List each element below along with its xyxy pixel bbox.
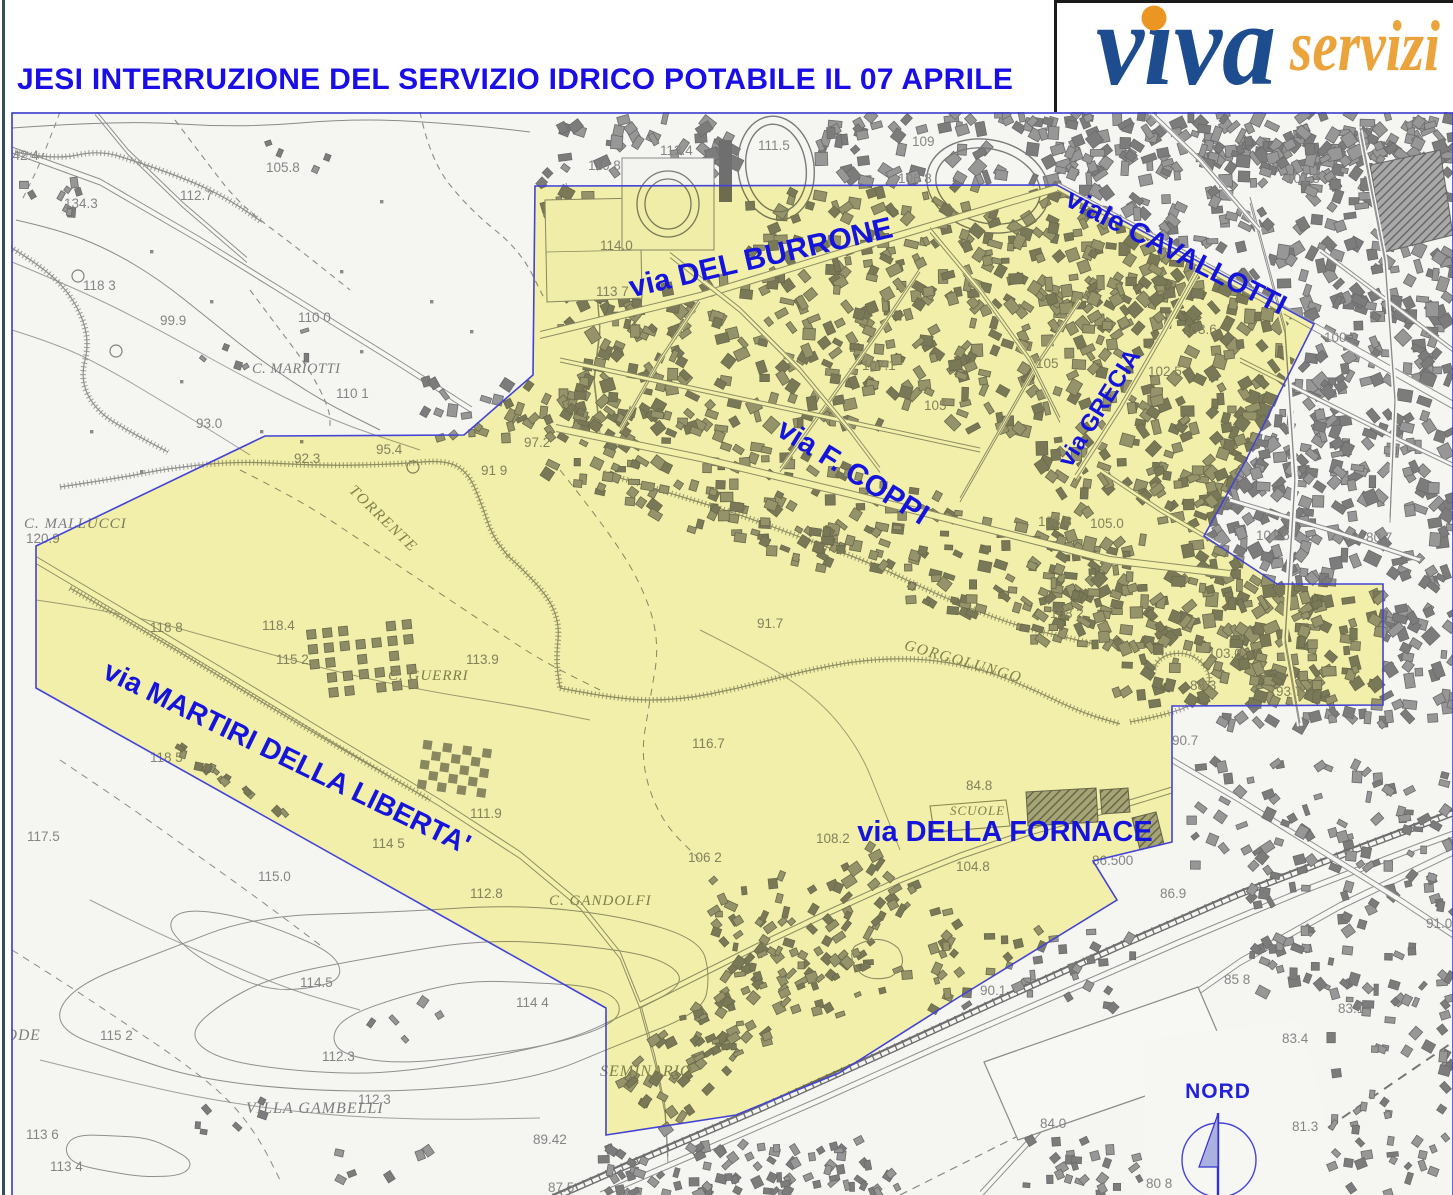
svg-text:109: 109 [912, 134, 935, 149]
svg-text:116 8: 116 8 [588, 158, 621, 173]
svg-text:118 3: 118 3 [83, 278, 116, 293]
svg-text:83.4: 83.4 [1282, 1031, 1309, 1046]
svg-text:80 7: 80 7 [1366, 530, 1392, 545]
svg-text:83.1: 83.1 [1338, 1001, 1364, 1016]
svg-text:112.7: 112.7 [180, 188, 213, 203]
svg-text:80 8: 80 8 [1146, 1176, 1172, 1191]
svg-text:111.5: 111.5 [758, 138, 790, 153]
svg-text:106 8: 106 8 [898, 171, 932, 186]
svg-text:112.3: 112.3 [322, 1049, 355, 1064]
svg-text:81.3: 81.3 [1292, 1119, 1318, 1134]
svg-text:100.2: 100.2 [1324, 330, 1358, 345]
svg-text:89.42: 89.42 [533, 1132, 567, 1147]
svg-text:115.0: 115.0 [258, 869, 291, 884]
svg-text:91.0: 91.0 [1426, 916, 1452, 931]
svg-text:113 6: 113 6 [26, 1127, 59, 1142]
svg-text:142.4: 142.4 [5, 148, 39, 163]
svg-text:101.3: 101.3 [1286, 171, 1320, 186]
svg-text:85 8: 85 8 [1224, 972, 1250, 987]
svg-text:VILLA GAMBELLI: VILLA GAMBELLI [246, 1100, 384, 1117]
svg-text:113.4: 113.4 [660, 143, 693, 158]
svg-text:101 6: 101 6 [1256, 528, 1290, 543]
svg-text:NORD: NORD [1185, 1080, 1251, 1103]
svg-text:105.8: 105.8 [266, 160, 300, 175]
svg-text:99.9: 99.9 [160, 313, 186, 328]
svg-text:114 4: 114 4 [516, 995, 549, 1010]
svg-text:C. MARIOTTI: C. MARIOTTI [252, 361, 341, 377]
svg-text:87.5: 87.5 [548, 1180, 574, 1195]
svg-text:90.7: 90.7 [1172, 733, 1198, 748]
svg-text:84.0: 84.0 [1040, 1116, 1066, 1131]
svg-text:134.3: 134.3 [64, 196, 98, 211]
svg-text:110 1: 110 1 [336, 386, 369, 401]
svg-text:113 4: 113 4 [50, 1159, 83, 1174]
svg-text:115 2: 115 2 [100, 1028, 133, 1043]
svg-text:MODE: MODE [0, 1027, 41, 1044]
svg-text:93.0: 93.0 [196, 416, 222, 431]
svg-text:86.9: 86.9 [1160, 886, 1186, 901]
svg-text:114.5: 114.5 [300, 975, 333, 990]
svg-text:117.5: 117.5 [27, 829, 60, 844]
svg-text:via DELLA FORNACE: via DELLA FORNACE [857, 816, 1152, 848]
svg-text:90.1: 90.1 [980, 983, 1006, 998]
svg-text:110 0: 110 0 [298, 310, 331, 325]
